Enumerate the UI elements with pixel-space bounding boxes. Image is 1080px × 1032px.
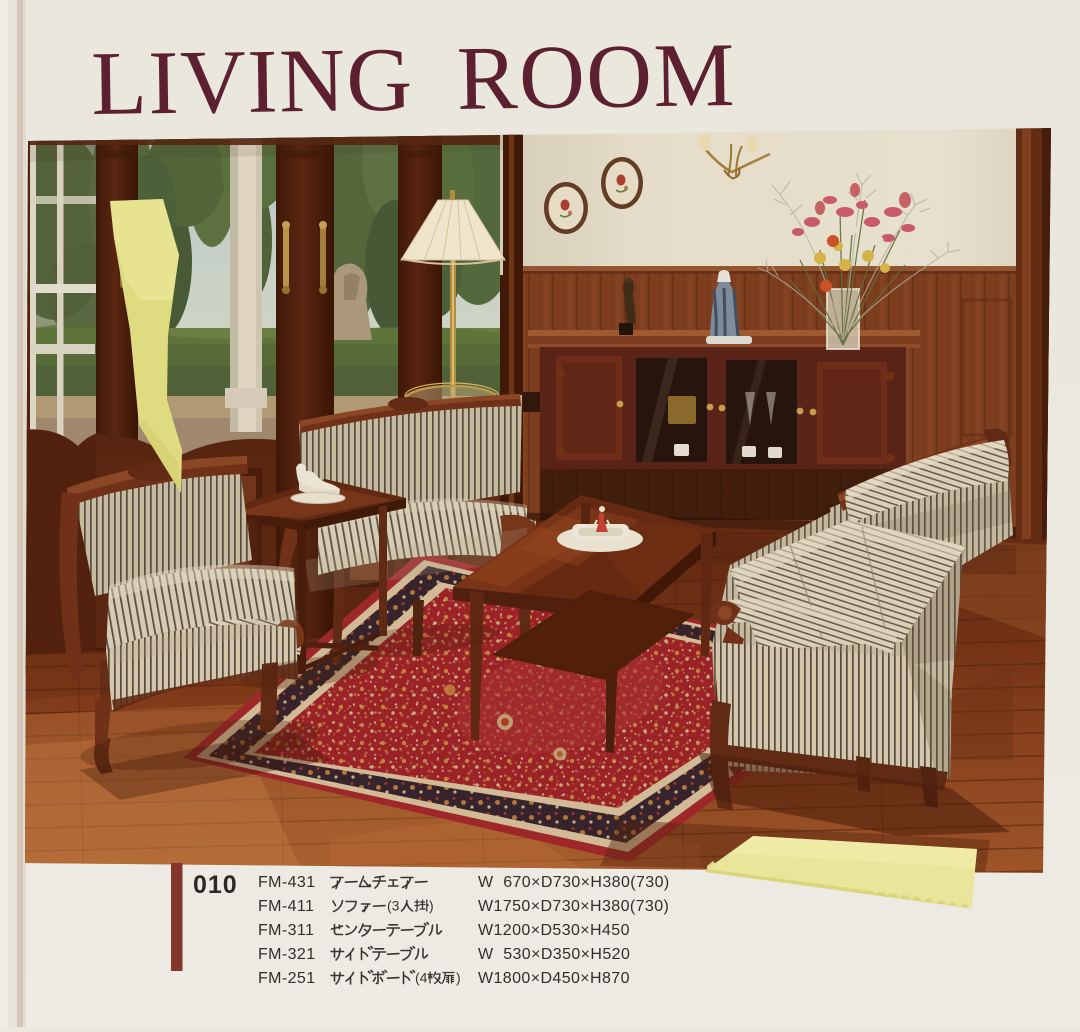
svg-text:(4: (4 [415,970,428,986]
svg-text:): ) [429,898,434,914]
svg-text:(3: (3 [387,898,400,914]
svg-text:): ) [456,970,461,986]
